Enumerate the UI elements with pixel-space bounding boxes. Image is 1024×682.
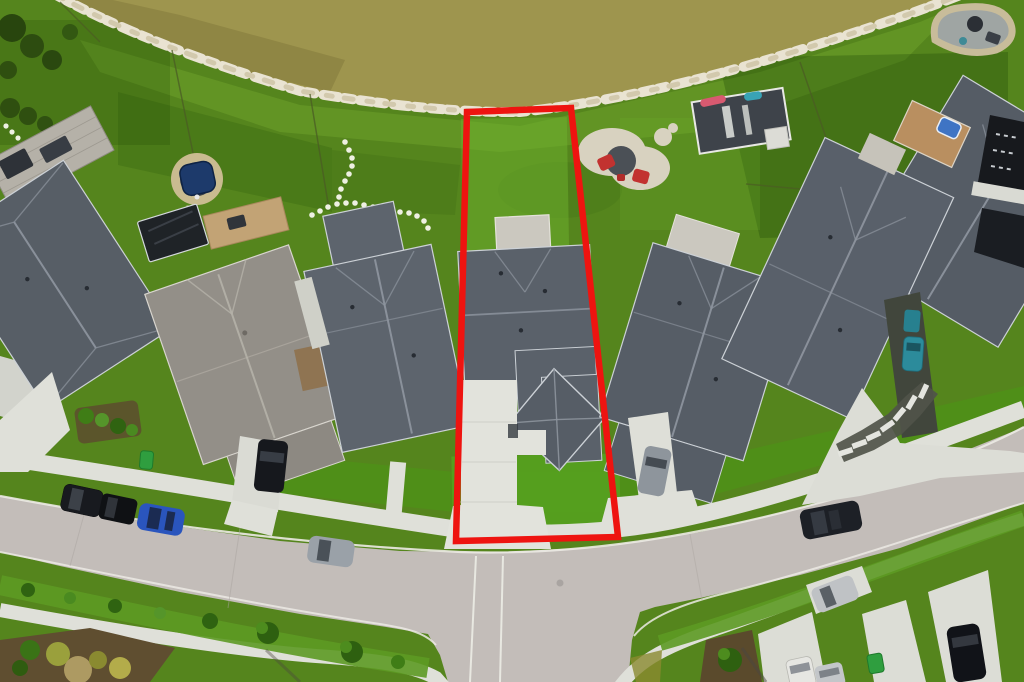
hedge-left-2 <box>19 107 37 125</box>
car-black-driveway2 <box>253 439 288 494</box>
shrub-house2-4 <box>126 424 138 436</box>
shrub-house2-3 <box>110 418 126 434</box>
manhole <box>557 580 564 587</box>
firepit-gravel-4 <box>668 123 678 133</box>
stepping-stone-b14 <box>421 218 427 224</box>
hot-tub-topright <box>967 16 983 32</box>
boulevard-tree-1b <box>256 622 268 634</box>
stepping-stone-a4 <box>349 163 355 169</box>
shrub-house2-2 <box>95 413 109 427</box>
car-teal-sideyard <box>902 336 924 371</box>
boulevard-tree-2b <box>340 641 352 653</box>
boulevard-bush-3 <box>108 599 122 613</box>
stepping-stone-b1 <box>309 212 315 218</box>
stepping-stone-b13 <box>414 213 420 219</box>
mulch-bush-3 <box>89 651 107 669</box>
boulevard-bush-2 <box>64 592 76 604</box>
tree-topleft-5 <box>62 24 78 40</box>
shrub-house2-1 <box>78 408 94 424</box>
stepping-stone-b12 <box>406 210 412 216</box>
firepit-red-table <box>617 174 625 181</box>
boulevard-bush-5 <box>202 613 218 629</box>
car-teal-sideyard-glass <box>906 343 921 352</box>
hedge-left-1 <box>0 98 20 118</box>
green-trash-bin-right <box>867 653 885 674</box>
trampoline-ladder <box>195 195 200 200</box>
stepping-stone-b11 <box>397 209 403 215</box>
stepping-stone-a6 <box>342 178 348 184</box>
stepping-stone-a1 <box>342 139 348 145</box>
tree-topleft-2 <box>20 34 44 58</box>
green-trash-bin-left <box>139 451 154 470</box>
stepping-stone-a5 <box>346 171 352 177</box>
scene-svg <box>0 0 1024 682</box>
mulch-bush-4 <box>109 657 131 679</box>
corner-tree-hl <box>718 648 730 660</box>
stepping-stone-a3 <box>349 155 355 161</box>
stepping-stone-a8 <box>336 194 342 200</box>
stepping-stone-a7 <box>338 186 344 192</box>
subject-back-deck <box>495 215 551 252</box>
stepping-stone-c3 <box>15 135 20 140</box>
stepping-stone-c2 <box>9 129 14 134</box>
sport-pad-extension <box>765 126 790 149</box>
stepping-stone-b6 <box>352 200 358 206</box>
stepping-stone-c1 <box>3 123 8 128</box>
subject-porch-shadow <box>508 424 518 438</box>
patio-item-teal <box>959 37 967 45</box>
mulch-bush-5 <box>12 660 28 676</box>
tree-topleft-3 <box>42 50 62 70</box>
stepping-stone-b4 <box>334 201 340 207</box>
stepping-stone-b3 <box>325 204 331 210</box>
stepping-stone-b5 <box>343 200 349 206</box>
boulevard-bush-1 <box>21 583 35 597</box>
trampoline-mat <box>178 160 217 197</box>
aerial-photo <box>0 0 1024 682</box>
boulevard-bush-4 <box>154 607 166 619</box>
stepping-stone-b2 <box>317 208 323 214</box>
stepping-stone-a2 <box>346 147 352 153</box>
boulevard-bush-6 <box>391 655 405 669</box>
stepping-stone-b15 <box>425 225 431 231</box>
subject-front-walk <box>517 430 546 455</box>
mulch-bush-1 <box>20 640 40 660</box>
teal-bin-sideyard <box>903 309 920 332</box>
